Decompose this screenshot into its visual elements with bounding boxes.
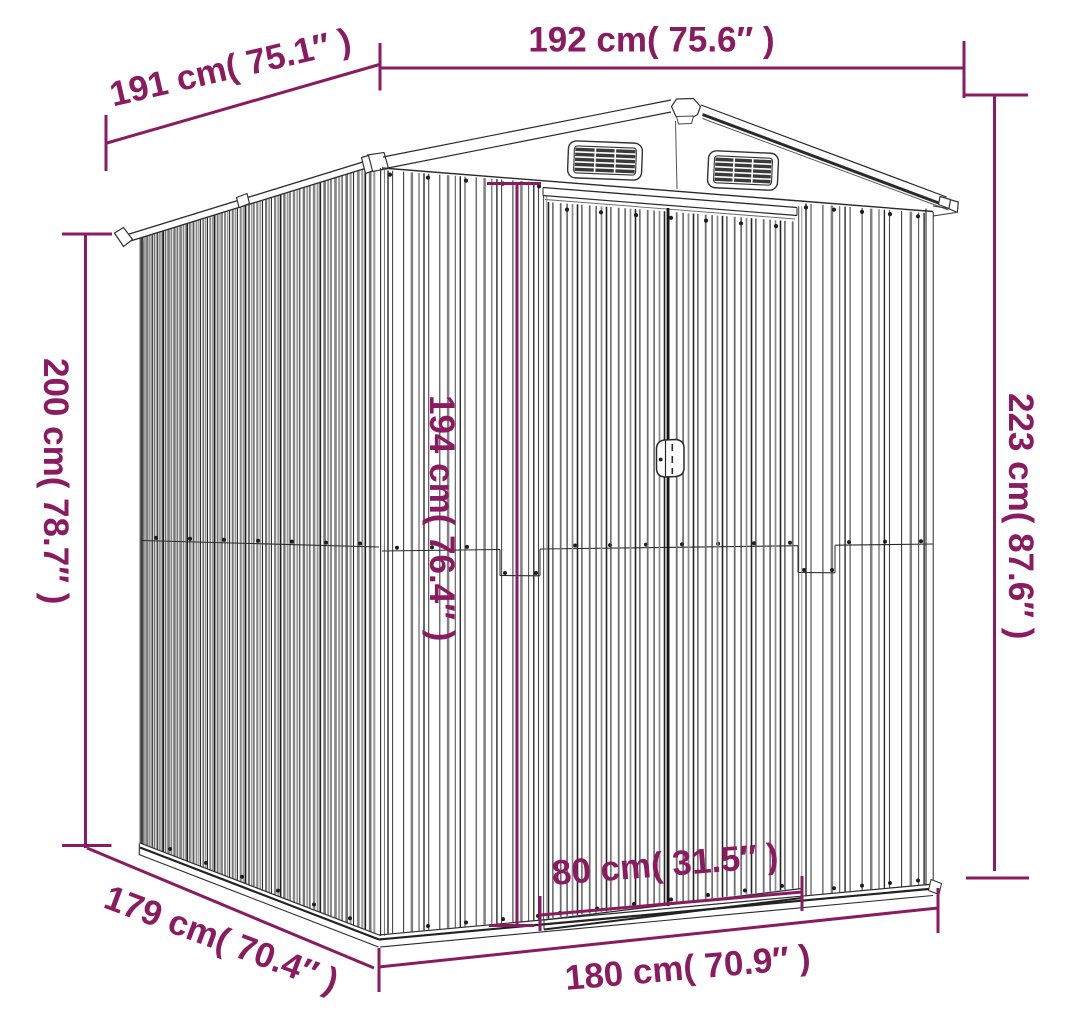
svg-text:192 cm( 75.6″ ): 192 cm( 75.6″ ) [528,21,774,60]
svg-text:194 cm( 76.4″ ): 194 cm( 76.4″ ) [422,395,461,641]
svg-text:223 cm( 87.6″ ): 223 cm( 87.6″ ) [1001,393,1040,639]
svg-text:200 cm( 78.7″ ): 200 cm( 78.7″ ) [36,358,75,604]
